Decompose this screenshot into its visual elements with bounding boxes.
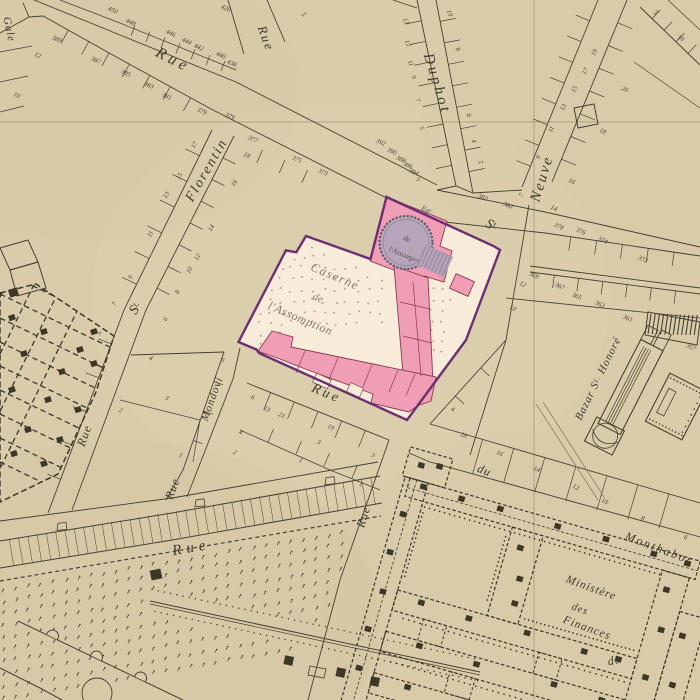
svg-text:de: de: [606, 652, 622, 668]
